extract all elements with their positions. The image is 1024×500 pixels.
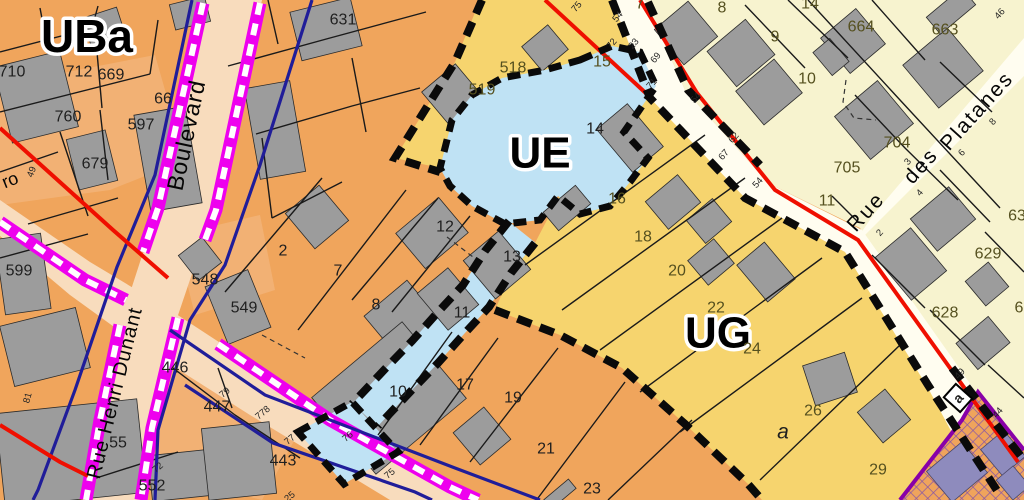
parcel-number-label: 7 <box>334 263 343 280</box>
parcel-number-label: 712 <box>66 64 93 81</box>
parcel-number-label: 7 <box>636 0 645 13</box>
parcel-number-label: 8 <box>372 297 381 314</box>
parcel-number-label: 29 <box>869 462 887 479</box>
parcel-number-label: 443 <box>270 453 297 470</box>
parcel-number-label: 446 <box>162 360 189 377</box>
parcel-number-label: 66 <box>154 91 172 108</box>
parcel-number-label: 705 <box>834 160 861 177</box>
parcel-number-label: 704 <box>884 135 911 152</box>
parcel-number-label: 12 <box>436 219 454 236</box>
parcel-number-label: 63 <box>1008 208 1024 225</box>
zoning-map-viewport: UBa UE UG a 6317107126696676059767959954… <box>0 0 1024 500</box>
parcel-number-label: 11 <box>454 305 471 322</box>
parcel-number-label: 669 <box>98 67 125 84</box>
parcel-number-label: 663 <box>932 22 959 39</box>
parcel-number-label: 518 <box>500 60 527 77</box>
parcel-number-label: 26 <box>804 403 822 420</box>
zone-label-uba: UBa <box>41 10 133 62</box>
parcel-number-label: 13 <box>503 249 521 266</box>
parcel-number-label: 548 <box>192 272 219 289</box>
parcel-number-label: 24 <box>743 341 761 358</box>
parcel-number-label: 2 <box>279 243 288 260</box>
parcel-number-label: 14 <box>586 121 604 138</box>
parcel-number-label: 664 <box>848 19 875 36</box>
parcel-number-label: 597 <box>128 117 155 134</box>
parcel-number-label: 23 <box>583 481 601 498</box>
parcel-number-label: 599 <box>6 263 33 280</box>
parcel-number-label: 760 <box>55 109 82 126</box>
parcel-number-label: 22 <box>707 300 725 317</box>
parcel-number-label: 20 <box>668 263 686 280</box>
parcel-number-label: 552 <box>139 478 166 495</box>
parcel-number-label: 16 <box>608 191 626 208</box>
parcel-number-label: 629 <box>975 246 1002 263</box>
parcel-number-label: 8 <box>718 0 727 17</box>
parcel-number-label: 19 <box>504 390 522 407</box>
parcel-number-label: 710 <box>0 64 25 81</box>
parcel-number-label: 14 <box>801 0 819 13</box>
parcel-number-label: 10 <box>798 71 816 88</box>
parcel-number-label: 9 <box>771 29 780 46</box>
parcel-number-label: 21 <box>537 441 555 458</box>
parcel-number-label: 519 <box>469 82 496 99</box>
parcel-number-label: 17 <box>456 377 474 394</box>
parcel-number-label: 11 <box>819 193 836 210</box>
parcel-number-label: 15 <box>593 54 611 71</box>
zone-label-ue: UE <box>509 129 570 178</box>
parcel-number-label: 10 <box>389 384 407 401</box>
parcel-number-label: 447 <box>204 399 231 416</box>
parcel-number-label: 549 <box>231 300 258 317</box>
parcel-number-label: 679 <box>82 156 109 173</box>
parcel-number-label: a <box>777 421 789 444</box>
parcel-number-label: 6 <box>1015 300 1024 317</box>
building <box>201 422 276 500</box>
zoning-map: UBa UE UG a 6317107126696676059767959954… <box>0 0 1024 500</box>
parcel-number-label: 631 <box>330 12 357 29</box>
parcel-number-label: 628 <box>932 305 959 322</box>
parcel-number-label: 18 <box>634 229 652 246</box>
